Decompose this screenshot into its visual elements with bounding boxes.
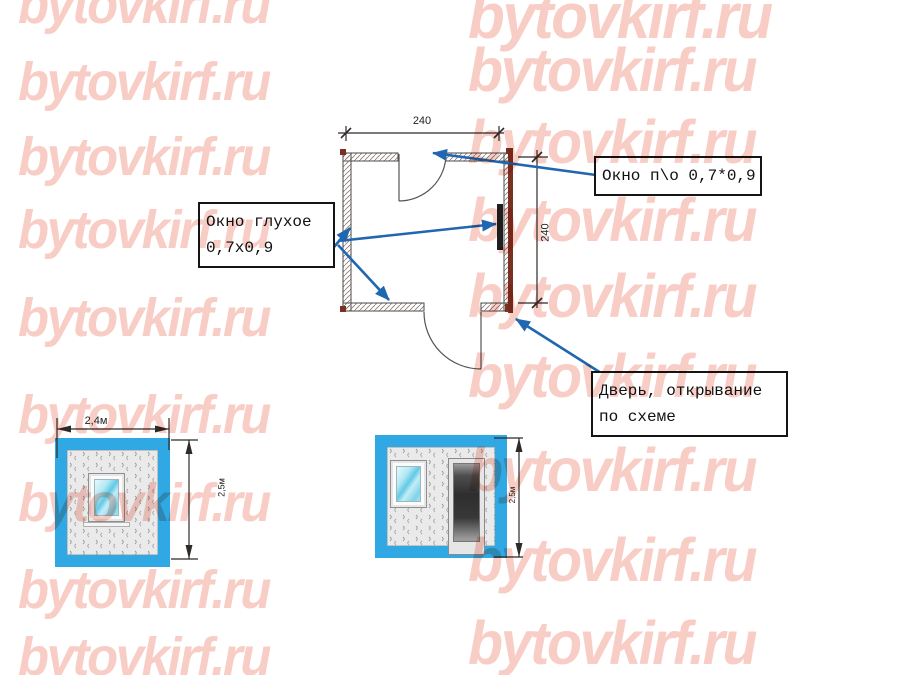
callout-window-fixed-line2: 0,7х0,9 [206,235,327,261]
floor-plan [340,148,513,369]
side-elevation [375,435,507,558]
watermark-text: bytovkirf.ru [468,40,755,101]
arrow-window-opening [433,153,596,175]
watermark-text: bytovkirf.ru [468,0,771,48]
watermark-text: bytovkirf.ru [18,630,269,675]
side-window-glass [396,466,421,502]
arrow-window-fixed-bottom [338,245,389,300]
callout-arrows [334,153,601,373]
side-door-panel [453,463,480,542]
watermark-text: bytovkirf.ru [468,190,755,251]
callout-window-opening: Окно п\о 0,7*0,9 [594,156,762,196]
watermark-text: bytovkirf.ru [18,388,269,442]
plan-linework [0,0,900,675]
watermark-text: bytovkirf.ru [18,291,269,345]
front-height-dim-label: 2,5м [217,470,228,506]
callout-window-opening-text: Окно п\о 0,7*0,9 [602,163,754,189]
callout-door-line2: по схеме [599,404,780,430]
arrow-door [516,319,601,373]
watermark-text: bytovkirf.ru [468,613,755,674]
plan-width-dim-label: 240 [402,115,442,127]
front-window-sill [83,522,130,527]
watermark-text: bytovkirf.ru [468,530,755,591]
front-width-dim-label: 2,4м [68,415,124,427]
front-elevation [55,438,170,567]
plan-dimensions [338,126,548,308]
arrow-window-fixed-right [338,224,496,241]
watermark-text: bytovkirf.ru [18,130,269,184]
plan-door-top [399,154,446,201]
side-elevation-door [448,458,485,555]
plan-right-wall-edge [508,151,513,313]
plan-height-dim-label: 240 [540,215,553,251]
callout-window-fixed: Окно глухое 0,7х0,9 [198,202,335,268]
watermark-text: bytovkirf.ru [18,0,269,32]
side-elevation-window [390,460,427,508]
drawing-canvas: Окно п\о 0,7*0,9 Окно глухое 0,7х0,9 Две… [0,0,900,675]
watermark-text: bytovkirf.ru [18,563,269,617]
callout-door-line1: Дверь, открывание [599,378,780,404]
watermark-text: bytovkirf.ru [18,55,269,109]
callout-door: Дверь, открывание по схеме [591,371,788,437]
front-window-glass [94,479,119,516]
watermark-text: bytovkirf.ru [468,266,755,327]
callout-window-fixed-line1: Окно глухое [206,209,327,235]
plan-door-bottom [424,312,481,369]
plan-window-opening-mark [497,204,503,250]
arrow-window-fixed-left [334,228,350,247]
front-elevation-window [88,473,125,522]
side-height-dim-label: 2,5м [508,478,518,512]
